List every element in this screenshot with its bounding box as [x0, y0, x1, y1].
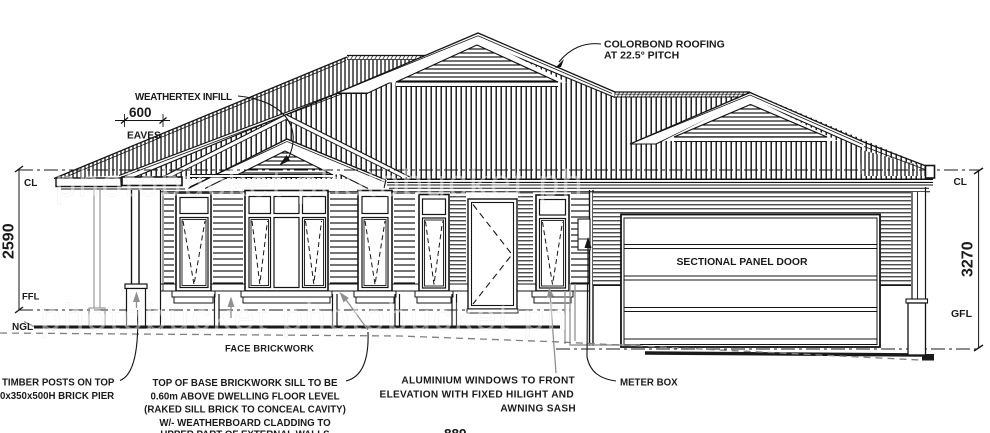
svg-text:AT 22.5° PITCH: AT 22.5° PITCH — [604, 49, 679, 61]
svg-text:ELEVATION WITH FIXED HILIGHT A: ELEVATION WITH FIXED HILIGHT AND — [380, 390, 574, 401]
svg-text:0x350x500H BRICK PIER: 0x350x500H BRICK PIER — [0, 391, 114, 402]
svg-text:NGL: NGL — [12, 322, 33, 333]
svg-text:600: 600 — [129, 105, 152, 120]
svg-text:CL: CL — [954, 177, 967, 188]
svg-text:UPPER PART OF EXTERNAL WALLS: UPPER PART OF EXTERNAL WALLS — [160, 430, 330, 433]
svg-text:photobucket photobucket ph: photobucket photobucket ph — [55, 163, 585, 205]
svg-text:ALUMINIUM WINDOWS TO FRONT: ALUMINIUM WINDOWS TO FRONT — [401, 376, 575, 387]
svg-text:2590: 2590 — [1, 223, 18, 259]
svg-text:CL: CL — [24, 178, 37, 189]
svg-text:W/- WEATHERBOARD CLADDING TO: W/- WEATHERBOARD CLADDING TO — [159, 418, 331, 429]
svg-text:WEATHERTEX INFILL: WEATHERTEX INFILL — [135, 92, 232, 103]
svg-text:TIMBER POSTS ON TOP: TIMBER POSTS ON TOP — [2, 378, 115, 389]
svg-text:FACE BRICKWORK: FACE BRICKWORK — [225, 344, 314, 354]
svg-text:889: 889 — [444, 427, 467, 433]
svg-text:AWNING SASH: AWNING SASH — [500, 404, 576, 415]
svg-text:GFL: GFL — [951, 308, 973, 320]
svg-text:(RAKED SILL BRICK TO CONCEAL C: (RAKED SILL BRICK TO CONCEAL CAVITY) — [144, 405, 346, 416]
svg-text:3270: 3270 — [960, 241, 977, 277]
svg-text:TOP OF BASE BRICKWORK SILL TO: TOP OF BASE BRICKWORK SILL TO BE — [153, 378, 339, 389]
svg-text:SECTIONAL PANEL DOOR: SECTIONAL PANEL DOOR — [676, 257, 808, 268]
svg-text:photobucket photobucket ph: photobucket photobucket ph — [40, 297, 570, 339]
svg-text:0.60m ABOVE DWELLING FLOOR LEV: 0.60m ABOVE DWELLING FLOOR LEVEL — [150, 392, 339, 403]
svg-text:EAVES: EAVES — [127, 131, 161, 142]
svg-text:METER BOX: METER BOX — [620, 378, 678, 389]
svg-text:FFL: FFL — [22, 292, 40, 303]
